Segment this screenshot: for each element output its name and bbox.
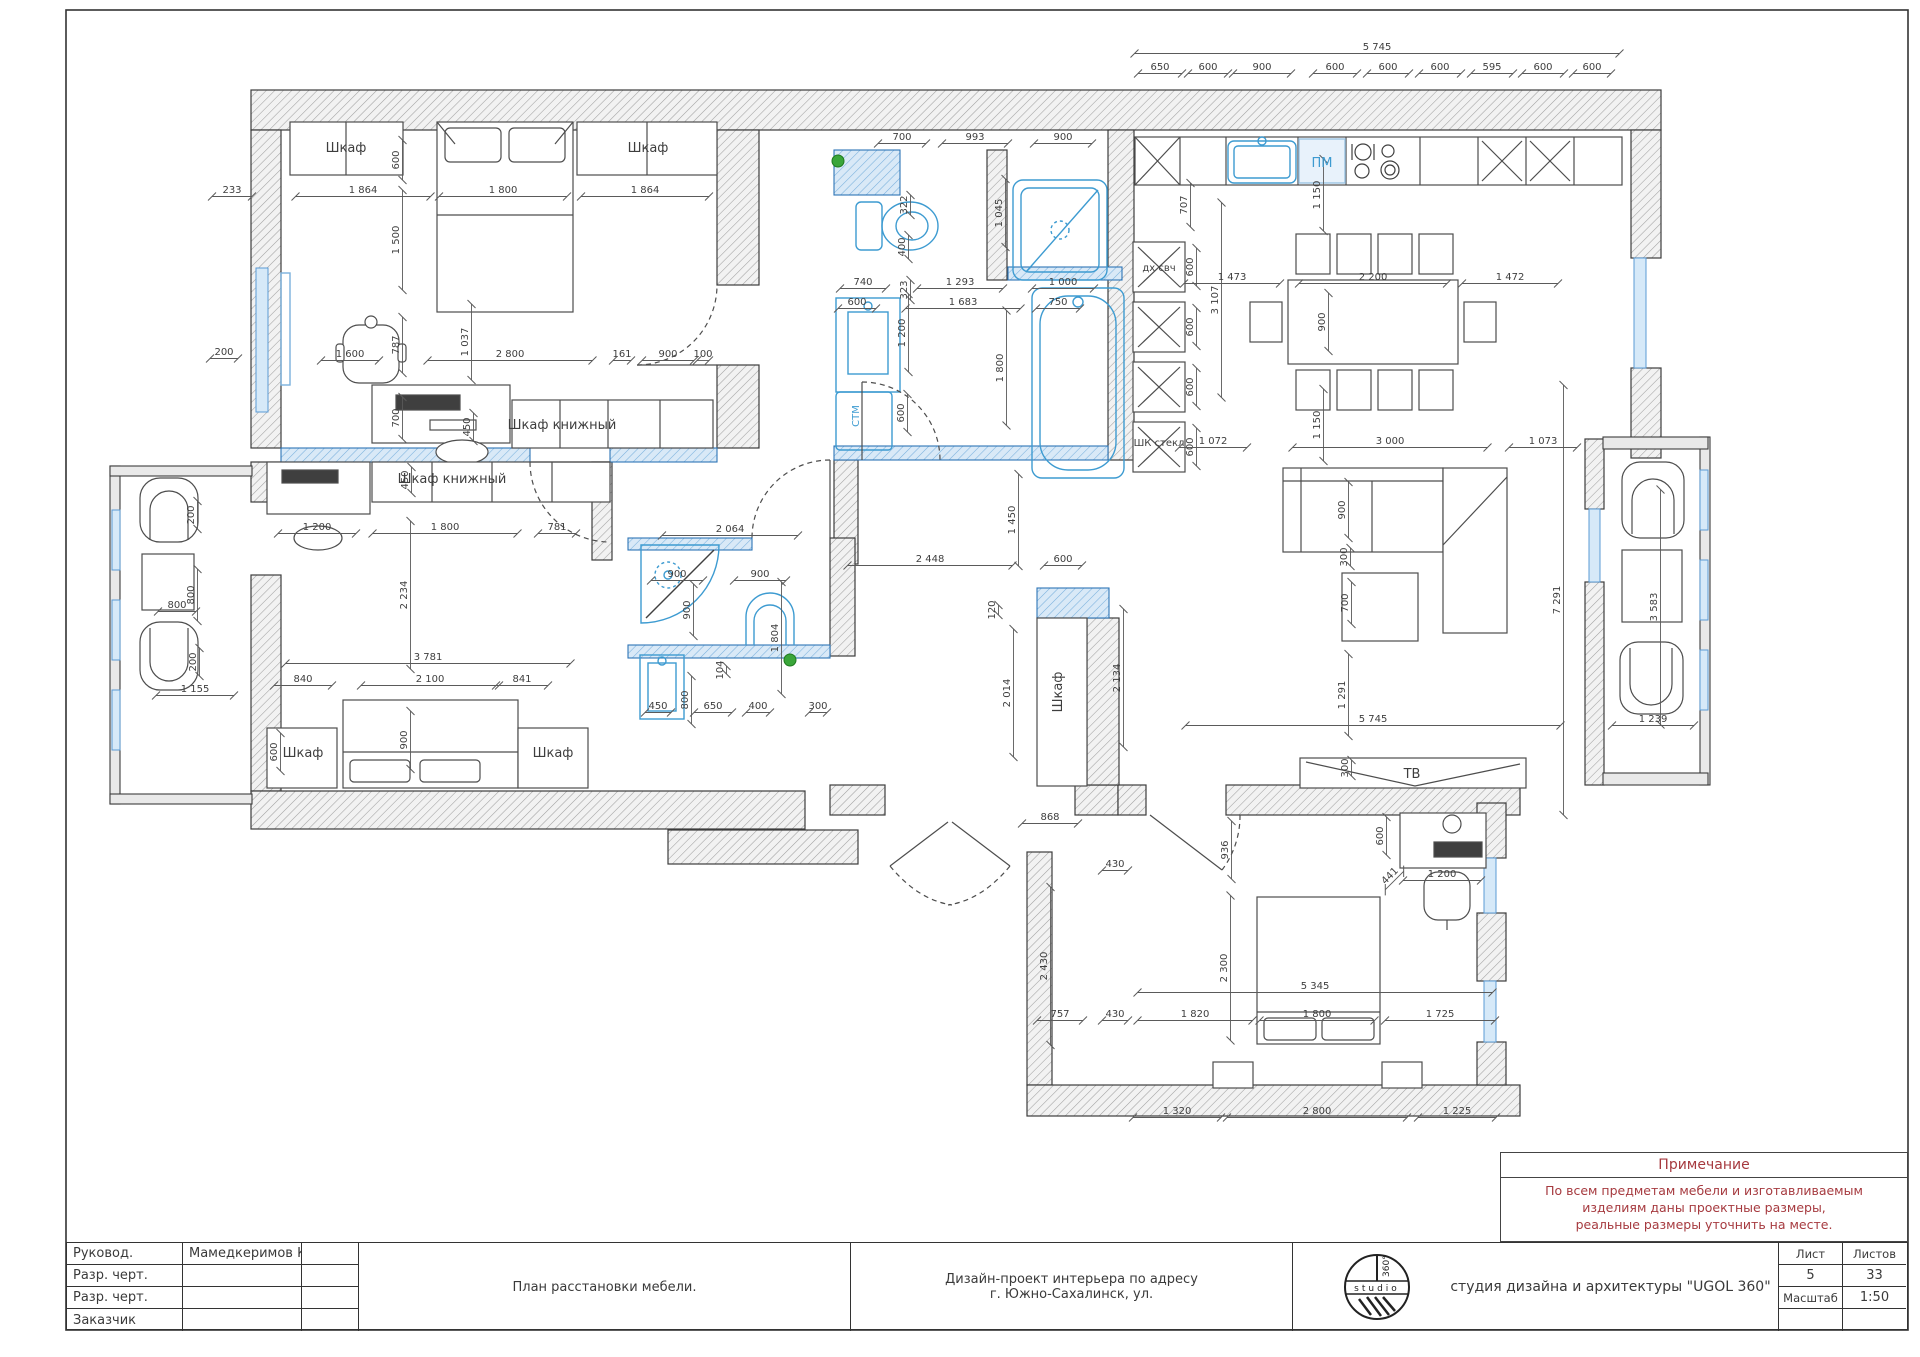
svg-text:1 800: 1 800 [1303, 1009, 1332, 1020]
dimension-label: 2 448 [844, 554, 1017, 570]
svg-text:900: 900 [682, 600, 693, 619]
dimension-label: 1 864 [292, 185, 435, 201]
room-label: ПМ [1312, 156, 1333, 171]
dimension-label: 900 [638, 349, 698, 365]
svg-text:650: 650 [703, 701, 722, 712]
svg-text:1 804: 1 804 [770, 624, 781, 653]
svg-text:1 864: 1 864 [631, 185, 660, 196]
tb-name: Мамедкеримов К.Р. [183, 1243, 302, 1265]
svg-text:600: 600 [1185, 377, 1196, 396]
svg-text:600: 600 [1533, 62, 1552, 73]
dimension-label: 2 234 [399, 517, 415, 673]
svg-text:900: 900 [1053, 132, 1072, 143]
svg-text:1 473: 1 473 [1218, 272, 1247, 283]
tb-sign [302, 1265, 359, 1287]
dimension-label: 900 [682, 580, 698, 640]
dimension-label: 100 [693, 349, 713, 365]
project-line: Дизайн-проект интерьера по адресу [945, 1272, 1198, 1287]
svg-text:600: 600 [1185, 317, 1196, 336]
svg-text:600: 600 [896, 403, 907, 422]
dimension-label: 323 [899, 276, 915, 304]
dimension-label: 2 300 [1219, 892, 1235, 1045]
dimension-label: 750 [1032, 297, 1084, 313]
dimension-label: 1 472 [1458, 272, 1562, 288]
svg-text:1 600: 1 600 [336, 349, 365, 360]
dimension-label: 841 [492, 674, 552, 690]
svg-text:233: 233 [222, 185, 241, 196]
svg-text:200: 200 [214, 347, 233, 358]
dining-table [1288, 280, 1458, 364]
dimension-label: 430 [1098, 859, 1132, 875]
svg-text:430: 430 [1105, 859, 1124, 870]
sink-cabinet [836, 298, 900, 392]
dimension-label: 1 800 [995, 307, 1011, 430]
kitchen-counter [1135, 137, 1622, 185]
svg-text:1 820: 1 820 [1181, 1009, 1210, 1020]
dimension-label: 600 [1185, 304, 1201, 350]
svg-text:1 200: 1 200 [897, 319, 908, 348]
note-box: Примечание По всем предметам мебели и из… [1500, 1152, 1908, 1242]
svg-text:600: 600 [1378, 62, 1397, 73]
svg-text:700: 700 [391, 408, 402, 427]
dimension-label: 1 725 [1381, 1009, 1499, 1025]
dimension-label: 300 [805, 701, 831, 717]
drawing-sheet: 5 7456506009006006006005956006002331 864… [0, 0, 1920, 1357]
svg-text:1 800: 1 800 [489, 185, 518, 196]
sheets-label: Листов [1843, 1243, 1906, 1265]
room-label: Шкаф [1051, 672, 1066, 713]
studio-cell: studio 360° студия дизайна и архитектуры… [1293, 1243, 1779, 1331]
drawing-title: План расстановки мебели. [359, 1243, 851, 1331]
logo-band-text: studio [1354, 1284, 1400, 1294]
svg-text:800: 800 [167, 600, 186, 611]
dimension-label: 233 [208, 185, 256, 201]
shower-cabin [1013, 180, 1107, 280]
svg-text:800: 800 [680, 690, 691, 709]
dimension-label: 600 [1375, 813, 1391, 859]
tb-sign [302, 1287, 359, 1309]
svg-text:600: 600 [1053, 554, 1072, 565]
svg-text:1 472: 1 472 [1496, 272, 1525, 283]
dimension-label: 600 [834, 297, 880, 313]
dimension-label: 868 [1018, 812, 1082, 828]
dimension-label: 430 [1098, 1009, 1132, 1025]
dimension-label: 600 [1363, 62, 1413, 78]
svg-text:1 683: 1 683 [949, 297, 978, 308]
svg-text:840: 840 [293, 674, 312, 685]
dimension-label: 600 [1569, 62, 1615, 78]
tb-role: Руковод. [67, 1243, 183, 1265]
svg-text:900: 900 [399, 730, 410, 749]
tb-name [183, 1287, 302, 1309]
svg-text:757: 757 [1050, 1009, 1069, 1020]
svg-text:5 745: 5 745 [1363, 42, 1392, 53]
svg-text:400: 400 [897, 237, 908, 256]
tb-name [183, 1265, 302, 1287]
svg-text:993: 993 [965, 132, 984, 143]
svg-text:707: 707 [1179, 195, 1190, 214]
svg-text:1 291: 1 291 [1337, 681, 1348, 710]
dimension-label: 707 [1179, 179, 1195, 231]
svg-text:600: 600 [1325, 62, 1344, 73]
svg-text:600: 600 [847, 297, 866, 308]
tb-empty [1843, 1309, 1906, 1331]
tb-role: Заказчик [67, 1309, 183, 1331]
dimension-label: 600 [1185, 424, 1201, 470]
studio-logo: studio 360° [1293, 1245, 1443, 1329]
dimension-label: 1 800 [369, 522, 522, 538]
dimension-label: 1 804 [770, 578, 786, 698]
title-block: Руковод. Разр. черт. Разр. черт. Заказчи… [66, 1242, 1908, 1330]
single-bed [343, 700, 518, 788]
svg-text:5 345: 5 345 [1301, 981, 1330, 992]
dimension-label: 600 [1309, 62, 1361, 78]
svg-text:100: 100 [693, 349, 712, 360]
dimension-label: 650 [1134, 62, 1186, 78]
project-address: Дизайн-проект интерьера по адресу г. Южн… [851, 1243, 1293, 1331]
washing-machine [836, 392, 892, 450]
svg-text:3 000: 3 000 [1376, 436, 1405, 447]
svg-text:2 100: 2 100 [416, 674, 445, 685]
dimension-label: 993 [938, 132, 1012, 148]
dimension-label: 600 [1415, 62, 1465, 78]
dimension-label: 900 [1229, 62, 1295, 78]
dimension-label: 1 239 [1608, 714, 1698, 730]
svg-text:2 064: 2 064 [716, 524, 745, 535]
sheets-value: 33 [1843, 1265, 1906, 1287]
note-title: Примечание [1501, 1153, 1907, 1178]
svg-text:600: 600 [1185, 257, 1196, 276]
note-line: изделиям даны проектные размеры, [1501, 1199, 1907, 1216]
svg-text:900: 900 [750, 569, 769, 580]
dimension-label: 781 [534, 522, 580, 538]
svg-text:441: 441 [1380, 866, 1401, 887]
svg-text:2 014: 2 014 [1002, 679, 1013, 708]
nightstand [1213, 1062, 1253, 1088]
svg-text:300: 300 [808, 701, 827, 712]
svg-text:1 225: 1 225 [1443, 1106, 1472, 1117]
room-label: Шкаф книжный [508, 418, 617, 433]
svg-text:5 745: 5 745 [1359, 714, 1388, 725]
svg-text:1 800: 1 800 [995, 354, 1006, 383]
svg-text:1 725: 1 725 [1426, 1009, 1455, 1020]
dimension-label: 322 [899, 191, 915, 219]
svg-text:700: 700 [1340, 593, 1351, 612]
dimension-label: 595 [1467, 62, 1517, 78]
dimension-label: 2 100 [357, 674, 503, 690]
dimension-label: 1 291 [1337, 650, 1353, 740]
sheet-value: 5 [1779, 1265, 1843, 1287]
tb-name [183, 1309, 302, 1331]
note-line: По всем предметам мебели и изготавливаем… [1501, 1182, 1907, 1199]
double-bed [437, 122, 573, 312]
svg-text:900: 900 [658, 349, 677, 360]
svg-text:600: 600 [1198, 62, 1217, 73]
dimension-label: 1 500 [391, 186, 407, 294]
tb-sign [302, 1243, 359, 1265]
svg-text:2 448: 2 448 [916, 554, 945, 565]
svg-text:900: 900 [667, 569, 686, 580]
svg-text:300: 300 [1339, 547, 1350, 566]
svg-text:104: 104 [715, 660, 726, 679]
svg-text:1 239: 1 239 [1639, 714, 1668, 725]
dimension-label: 936 [1220, 817, 1236, 883]
green-point-marker [784, 654, 796, 666]
svg-text:600: 600 [391, 150, 402, 169]
tb-empty [1779, 1309, 1843, 1331]
dimension-label: 2 800 [424, 349, 597, 365]
dimension-label: 1 450 [1007, 470, 1023, 570]
svg-text:1 450: 1 450 [1007, 506, 1018, 535]
green-point-marker [832, 155, 844, 167]
svg-text:1 000: 1 000 [1049, 277, 1078, 288]
svg-text:1 200: 1 200 [1428, 869, 1457, 880]
double-bed [1257, 897, 1380, 1044]
radiator [281, 273, 290, 385]
nightstand [1382, 1062, 1422, 1088]
svg-text:1 320: 1 320 [1163, 1106, 1192, 1117]
furniture [140, 122, 1684, 1088]
dimension-label: 1 864 [577, 185, 713, 201]
room-label: Шкаф [283, 746, 324, 761]
svg-text:2 300: 2 300 [1219, 954, 1230, 983]
loggia-chair [1620, 642, 1683, 714]
svg-text:1 037: 1 037 [460, 328, 471, 357]
note-body: По всем предметам мебели и изготавливаем… [1501, 1178, 1907, 1233]
dimension-label: 2 014 [1002, 625, 1018, 761]
dimension-label: 700 [874, 132, 930, 148]
svg-text:1 150: 1 150 [1312, 411, 1323, 440]
svg-text:1 045: 1 045 [994, 199, 1005, 228]
svg-text:3 781: 3 781 [414, 652, 443, 663]
svg-text:1 150: 1 150 [1312, 181, 1323, 210]
dimension-label: 3 107 [1210, 199, 1226, 402]
door [752, 460, 830, 538]
svg-text:936: 936 [1220, 840, 1231, 859]
sheet-label: Лист [1779, 1243, 1843, 1265]
desk [267, 462, 370, 550]
dimension-label: 1 820 [1134, 1009, 1257, 1025]
dimension-label: 600 [1185, 364, 1201, 410]
svg-text:781: 781 [547, 522, 566, 533]
svg-text:2 800: 2 800 [1303, 1106, 1332, 1117]
svg-text:2 200: 2 200 [1359, 272, 1388, 283]
svg-text:1 073: 1 073 [1529, 436, 1558, 447]
svg-text:200: 200 [186, 505, 197, 524]
tb-sign [302, 1309, 359, 1331]
entry-double-door [890, 822, 1010, 905]
svg-text:900: 900 [1252, 62, 1271, 73]
svg-text:2 430: 2 430 [1039, 952, 1050, 981]
dimension-label: 1 073 [1505, 436, 1581, 452]
svg-text:322: 322 [899, 195, 910, 214]
room-label: Шкаф [533, 746, 574, 761]
svg-text:200: 200 [188, 652, 199, 671]
dimension-label: 5 745 [1131, 42, 1624, 58]
svg-text:450: 450 [462, 417, 473, 436]
svg-text:2 800: 2 800 [496, 349, 525, 360]
scale-label: Масштаб [1779, 1287, 1843, 1309]
svg-text:900: 900 [1337, 500, 1348, 519]
svg-text:400: 400 [748, 701, 767, 712]
svg-text:650: 650 [1150, 62, 1169, 73]
svg-text:600: 600 [1582, 62, 1601, 73]
dimension-label: 400 [897, 231, 913, 263]
svg-text:7 291: 7 291 [1552, 586, 1563, 615]
room-label: СТМ [851, 405, 862, 427]
address-line: г. Южно-Сахалинск, ул. [945, 1287, 1198, 1302]
svg-text:787: 787 [391, 335, 402, 354]
scale-value: 1:50 [1843, 1287, 1906, 1309]
svg-text:600: 600 [1375, 826, 1386, 845]
room-label: Шкаф [628, 141, 669, 156]
tb-role: Разр. черт. [67, 1265, 183, 1287]
svg-text:2 234: 2 234 [399, 581, 410, 610]
corner-shower [641, 545, 719, 623]
dimension-label: 120 [987, 600, 1003, 619]
room-label: Шкаф книжный [398, 472, 507, 487]
tb-role: Разр. черт. [67, 1287, 183, 1309]
logo-degrees-text: 360° [1382, 1255, 1392, 1277]
svg-text:841: 841 [512, 674, 531, 685]
desk [1400, 813, 1486, 868]
svg-text:1 500: 1 500 [391, 226, 402, 255]
dimension-label: 400 [742, 701, 774, 717]
dimension-label: 450 [641, 701, 675, 717]
svg-text:868: 868 [1040, 812, 1059, 823]
svg-text:1 293: 1 293 [946, 277, 975, 288]
svg-text:120: 120 [987, 600, 998, 619]
svg-text:450: 450 [648, 701, 667, 712]
svg-text:1 072: 1 072 [1199, 436, 1228, 447]
dimension-label: 600 [896, 390, 912, 436]
dimension-label: 650 [690, 701, 736, 717]
dimension-label: 600 [1518, 62, 1568, 78]
svg-text:1 800: 1 800 [431, 522, 460, 533]
svg-text:900: 900 [1317, 312, 1328, 331]
svg-text:300: 300 [1340, 758, 1351, 777]
svg-text:800: 800 [186, 585, 197, 604]
dimension-label: 600 [1184, 62, 1232, 78]
loggia-chair [1622, 462, 1684, 538]
studio-name: студия дизайна и архитектуры "UGOL 360" [1443, 1279, 1778, 1295]
svg-text:2 134: 2 134 [1112, 664, 1123, 693]
room-label: Шкаф [326, 141, 367, 156]
dimension-label: 2 064 [658, 524, 802, 540]
note-line: реальные размеры уточнить на месте. [1501, 1216, 1907, 1233]
dimension-label: 3 781 [282, 652, 575, 668]
svg-text:595: 595 [1482, 62, 1501, 73]
svg-text:600: 600 [269, 742, 280, 761]
svg-text:1 155: 1 155 [181, 684, 210, 695]
dimension-label: 5 745 [1182, 714, 1565, 730]
dimension-label: 161 [609, 349, 635, 365]
dimension-label: 740 [836, 277, 890, 293]
svg-text:1 200: 1 200 [303, 522, 332, 533]
dimension-label: 900 [1030, 132, 1096, 148]
svg-text:750: 750 [1048, 297, 1067, 308]
svg-text:3 583: 3 583 [1649, 593, 1660, 622]
svg-text:161: 161 [612, 349, 631, 360]
dimension-label: 600 [1040, 554, 1086, 570]
svg-text:1 864: 1 864 [349, 185, 378, 196]
svg-text:600: 600 [1430, 62, 1449, 73]
room-label: ШК стекл [1134, 438, 1185, 449]
svg-text:600: 600 [1185, 437, 1196, 456]
dimension-label: 104 [715, 660, 731, 679]
room-label: ТВ [1403, 767, 1421, 782]
svg-text:740: 740 [853, 277, 872, 288]
svg-text:430: 430 [1105, 1009, 1124, 1020]
dimension-label: 200 [206, 347, 242, 363]
room-label: дх свч [1142, 263, 1175, 274]
dimension-label: 1 037 [460, 300, 476, 384]
svg-text:3 107: 3 107 [1210, 286, 1221, 315]
svg-text:700: 700 [892, 132, 911, 143]
